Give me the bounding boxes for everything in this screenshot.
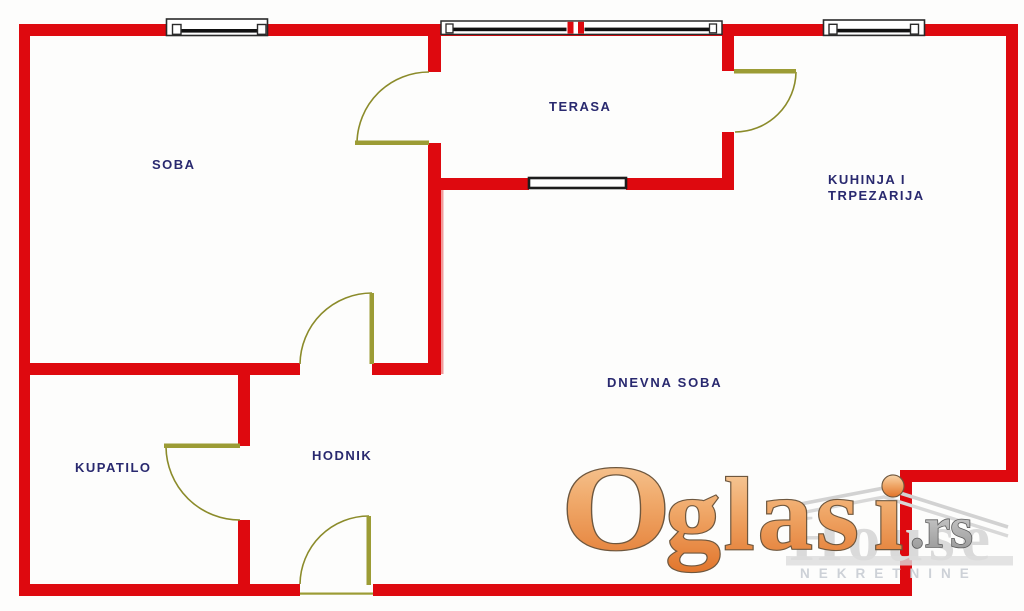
svg-text:SOBA: SOBA [152, 157, 196, 172]
svg-text:TERASA: TERASA [549, 99, 611, 114]
svg-text:O: O [561, 440, 671, 576]
svg-text:KUHINJA I: KUHINJA I [828, 172, 906, 187]
svg-text:.rs: .rs [910, 495, 973, 560]
svg-text:ı: ı [874, 457, 903, 572]
svg-text:TRPEZARIJA: TRPEZARIJA [828, 188, 925, 203]
svg-text:glas: glas [666, 458, 862, 573]
svg-text:HODNIK: HODNIK [312, 448, 372, 463]
svg-text:KUPATILO: KUPATILO [75, 460, 152, 475]
svg-text:DNEVNA SOBA: DNEVNA SOBA [607, 375, 722, 390]
